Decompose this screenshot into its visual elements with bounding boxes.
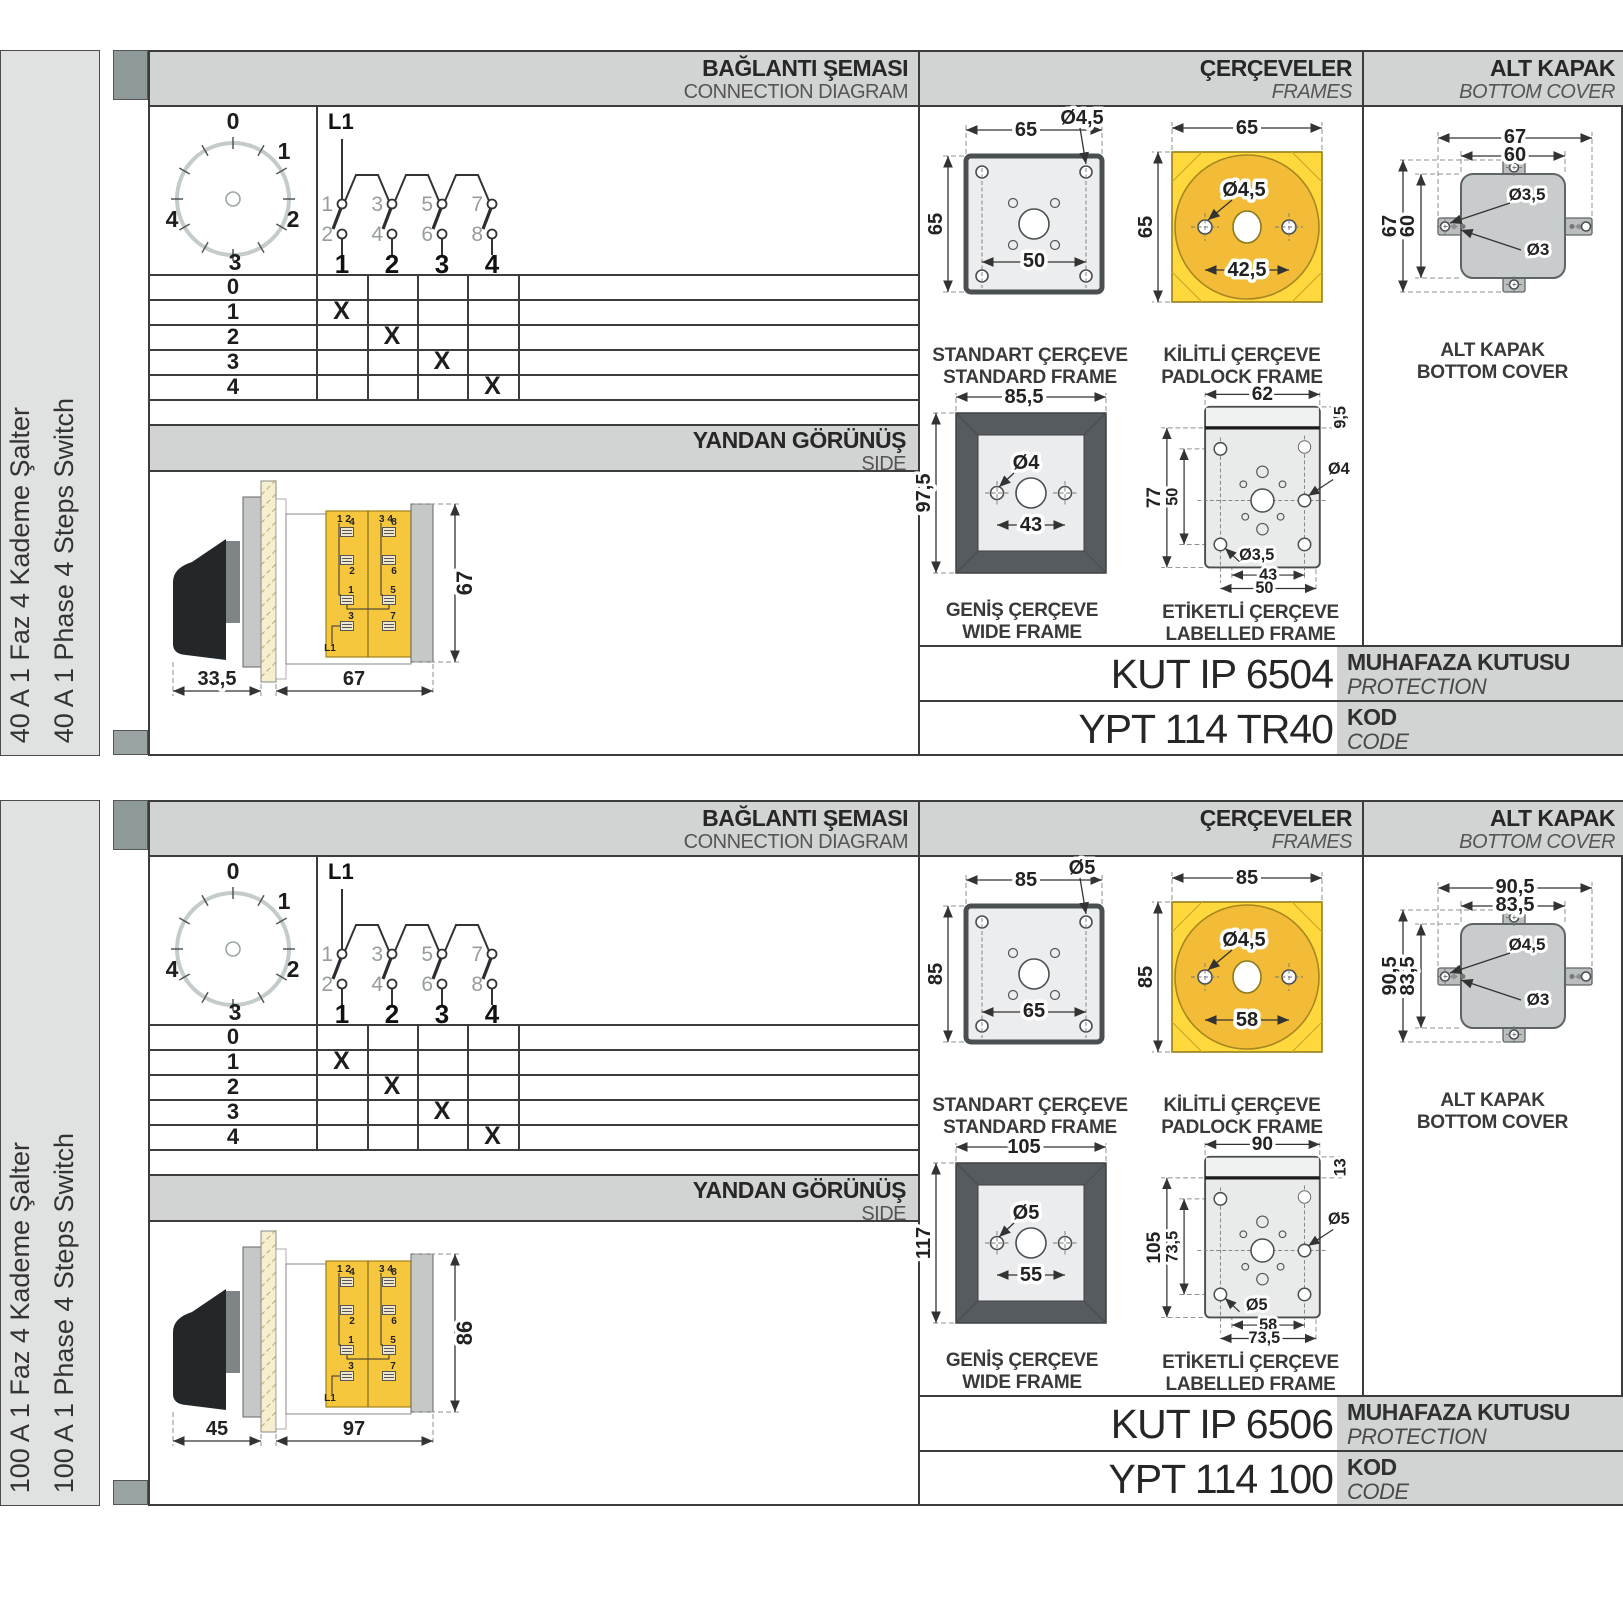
dim-height-outer: 105: [1144, 1231, 1165, 1263]
svg-text:0: 0: [227, 108, 240, 134]
svg-text:4: 4: [485, 999, 500, 1029]
header-title-tr: ÇERÇEVELER: [918, 55, 1352, 81]
svg-text:6: 6: [391, 1316, 397, 1327]
standard-frame-caption: STANDART ÇERÇEVE STANDARD FRAME: [930, 345, 1130, 389]
svg-text:6: 6: [391, 566, 397, 577]
svg-text:1: 1: [321, 943, 333, 966]
header-title-en: BOTTOM COVER: [1362, 831, 1615, 853]
end-plate: [411, 504, 433, 662]
header-title-en: FRAMES: [918, 81, 1352, 103]
svg-text:1: 1: [348, 1335, 354, 1346]
corner-tab-top: [113, 800, 148, 850]
svg-text:2: 2: [349, 1316, 355, 1327]
hole-diameter-label: Ø4,5: [1060, 107, 1103, 129]
svg-text:4: 4: [166, 956, 179, 982]
hole-diameter-bottom-left: Ø5: [1246, 1296, 1268, 1314]
switch-circuit-diagram: L1: [316, 857, 918, 1024]
svg-text:1: 1: [335, 249, 349, 279]
side-view-header: YANDAN GÖRÜNÜŞ SIDE: [150, 424, 918, 472]
rotary-dial-diagram: 0 1 2 3 4: [150, 857, 316, 1024]
dim-hole-pitch: 43: [1020, 514, 1042, 536]
switch-handle: [173, 1289, 226, 1410]
hole-diameter-a: Ø3,5: [1509, 185, 1546, 204]
svg-text:7: 7: [390, 611, 396, 622]
hole-diameter-label: Ø4: [1013, 452, 1041, 474]
dim-width: 85,5: [1005, 386, 1044, 408]
side-view-drawing: 1 23 4 48 26 15 37 L1 33,5 67 67: [158, 474, 503, 709]
svg-text:6: 6: [421, 223, 433, 246]
feed-label: L1: [328, 109, 354, 134]
svg-text:7: 7: [471, 193, 483, 216]
dim-hole-pitch: 50: [1023, 250, 1045, 272]
dim-handle-depth: 33,5: [198, 668, 237, 690]
header-connection-diagram: BAĞLANTI ŞEMASI CONNECTION DIAGRAM: [150, 802, 918, 857]
hole-diameter-right: Ø5: [1328, 1210, 1350, 1228]
bottom-cover-caption: ALT KAPAK BOTTOM COVER: [1375, 1090, 1610, 1134]
table-row-label: 1: [150, 1049, 316, 1074]
svg-text:7: 7: [471, 943, 483, 966]
bridge-links: [345, 925, 489, 951]
dim-top-strip: 9,5: [1332, 406, 1350, 429]
labelled-frame-drawing: 62 9,5 77 50 Ø4 Ø3,5 43 50: [1138, 382, 1363, 598]
hole-diameter-right: Ø4: [1328, 460, 1350, 478]
header-title-en: FRAMES: [918, 831, 1352, 853]
table-row-label: 1: [150, 299, 316, 324]
labelled-frame-caption: ETİKETLİ ÇERÇEVE LABELLED FRAME: [1138, 1352, 1363, 1396]
table-row-label: 2: [150, 324, 316, 349]
hole-diameter-label: Ø4,5: [1222, 929, 1265, 951]
header-frames: ÇERÇEVELER FRAMES: [918, 52, 1362, 107]
svg-text:5: 5: [390, 585, 396, 596]
svg-text:4: 4: [371, 973, 383, 996]
side-title-tr: YANDAN GÖRÜNÜŞ: [150, 427, 906, 453]
dim-hole-pitch: 58: [1236, 1009, 1258, 1031]
dim-width: 62: [1252, 384, 1273, 405]
bottom-cover-drawing: 67 60 67 60 Ø3,5 Ø3: [1375, 112, 1610, 337]
dim-pitch-b: 73,5: [1249, 1329, 1281, 1347]
svg-text:3: 3: [435, 249, 449, 279]
dim-height: 85: [925, 963, 947, 985]
svg-text:8: 8: [471, 223, 483, 246]
svg-text:3: 3: [229, 249, 242, 275]
hole-diameter-a: Ø4,5: [1509, 935, 1546, 954]
table-row-label: 0: [150, 274, 316, 299]
table-row-label: 0: [150, 1024, 316, 1049]
side-view-drawing: 1 23 4 48 26 15 37 L1 45 97 86: [158, 1224, 503, 1459]
svg-text:1: 1: [348, 585, 354, 596]
svg-text:2: 2: [349, 566, 355, 577]
enclosure-code: KUT IP 6506: [918, 1395, 1337, 1450]
svg-text:2: 2: [287, 206, 300, 232]
product-section-100a: 100 A 1 Faz 4 Kademe Şalter 100 A 1 Phas…: [0, 800, 1623, 1506]
front-plate: [243, 497, 261, 667]
dim-width-inner: 60: [1504, 144, 1526, 166]
header-title-en: CONNECTION DIAGRAM: [150, 81, 908, 103]
panel-hatch: [261, 1231, 276, 1432]
svg-text:1: 1: [321, 193, 333, 216]
svg-text:8: 8: [471, 973, 483, 996]
product-name-en: 100 A 1 Phase 4 Steps Switch: [49, 1133, 80, 1493]
bottom-cover-caption: ALT KAPAK BOTTOM COVER: [1375, 340, 1610, 384]
svg-text:6: 6: [421, 973, 433, 996]
product-name-tr: 100 A 1 Faz 4 Kademe Şalter: [5, 1142, 36, 1493]
dim-width: 65: [1236, 117, 1258, 139]
step-cell: X: [316, 1049, 367, 1074]
standard-frame-caption: STANDART ÇERÇEVE STANDARD FRAME: [930, 1095, 1130, 1139]
dim-pitch-b: 50: [1255, 579, 1273, 597]
dim-height-inner: 73,5: [1163, 1231, 1181, 1263]
product-label-bar: 100 A 1 Faz 4 Kademe Şalter 100 A 1 Phas…: [0, 800, 100, 1506]
header-title-en: BOTTOM COVER: [1362, 81, 1615, 103]
dim-height-outer: 77: [1144, 487, 1165, 508]
svg-text:2: 2: [385, 249, 399, 279]
svg-text:3: 3: [348, 611, 354, 622]
side-view-header: YANDAN GÖRÜNÜŞ SIDE: [150, 1174, 918, 1222]
dim-width: 105: [1007, 1136, 1040, 1158]
product-name-tr: 40 A 1 Faz 4 Kademe Şalter: [5, 407, 36, 743]
table-row-label: 4: [150, 374, 316, 399]
header-title-en: CONNECTION DIAGRAM: [150, 831, 908, 853]
handle-shaft: [226, 541, 240, 623]
svg-text:4: 4: [349, 1267, 355, 1278]
svg-text:4: 4: [166, 206, 179, 232]
dim-width: 90: [1252, 1134, 1273, 1155]
dim-height-inner: 83,5: [1397, 957, 1419, 996]
end-plate: [411, 1254, 433, 1412]
dim-width: 85: [1236, 867, 1258, 889]
svg-text:3: 3: [371, 943, 383, 966]
hole-diameter-bottom-left: Ø3,5: [1239, 546, 1274, 564]
dim-height: 65: [925, 213, 947, 235]
svg-text:L1: L1: [324, 1393, 336, 1404]
product-code: YPT 114 100: [918, 1450, 1337, 1504]
dim-hole-pitch: 55: [1020, 1264, 1042, 1286]
dim-hole-pitch: 65: [1023, 1000, 1045, 1022]
handle-shaft: [226, 1291, 240, 1373]
product-section-40a: 40 A 1 Faz 4 Kademe Şalter 40 A 1 Phase …: [0, 50, 1623, 756]
table-bottom-line: [150, 399, 918, 401]
dim-height: 85: [1135, 966, 1157, 988]
dim-top-strip: 13: [1332, 1158, 1350, 1176]
svg-text:0: 0: [227, 858, 240, 884]
step-cell: X: [367, 324, 417, 349]
code-label-cell: KOD CODE: [1337, 700, 1623, 754]
enclosure-code: KUT IP 6504: [918, 645, 1337, 700]
svg-text:5: 5: [390, 1335, 396, 1346]
section-content: BAĞLANTI ŞEMASI CONNECTION DIAGRAM ÇERÇE…: [148, 800, 1623, 1506]
svg-text:5: 5: [421, 943, 433, 966]
svg-text:5: 5: [421, 193, 433, 216]
switch-circuit-diagram: L1: [316, 107, 918, 274]
hole-diameter-b: Ø3: [1527, 990, 1550, 1009]
side-title-en: SIDE: [150, 453, 906, 475]
wide-frame-caption: GENİŞ ÇERÇEVE WIDE FRAME: [922, 1350, 1122, 1394]
header-title-tr: ALT KAPAK: [1362, 55, 1615, 81]
table-row-label: 4: [150, 1124, 316, 1149]
dim-width-inner: 83,5: [1496, 894, 1535, 916]
product-label-bar: 40 A 1 Faz 4 Kademe Şalter 40 A 1 Phase …: [0, 50, 100, 756]
dim-body-depth: 97: [343, 1418, 365, 1440]
step-cell: X: [467, 374, 518, 399]
svg-text:4: 4: [371, 223, 383, 246]
header-bottom-cover: ALT KAPAK BOTTOM COVER: [1362, 52, 1623, 107]
corner-tab-bottom: [113, 1480, 148, 1505]
corner-tab-top: [113, 50, 148, 100]
header-connection-diagram: BAĞLANTI ŞEMASI CONNECTION DIAGRAM: [150, 52, 918, 107]
feed-label: L1: [328, 859, 354, 884]
dim-height-inner: 60: [1397, 215, 1419, 237]
dim-height: 117: [913, 1227, 935, 1259]
labelled-frame-drawing: 90 13 105 73,5 Ø5 Ø5 58 73,5: [1138, 1132, 1363, 1348]
svg-text:3: 3: [435, 999, 449, 1029]
dim-height-inner: 50: [1163, 488, 1181, 506]
dim-body-height: 67: [452, 571, 477, 595]
hole-diameter-label: Ø4,5: [1222, 179, 1265, 201]
enclosure-label-cell: MUHAFAZA KUTUSU PROTECTION ENCLOSURE: [1337, 1395, 1623, 1450]
svg-text:1: 1: [278, 138, 291, 164]
dim-body-height: 86: [452, 1321, 477, 1345]
header-title-tr: BAĞLANTI ŞEMASI: [150, 805, 908, 831]
step-cell: X: [417, 1099, 467, 1124]
dim-height: 97,5: [913, 474, 935, 513]
bridge-links: [345, 175, 489, 201]
padlock-frame-drawing: 65 65 42,5 Ø4,5: [1142, 110, 1342, 345]
svg-text:L1: L1: [324, 643, 336, 654]
header-title-tr: ÇERÇEVELER: [918, 805, 1352, 831]
product-name-en: 40 A 1 Phase 4 Steps Switch: [49, 398, 80, 743]
svg-text:2: 2: [321, 973, 333, 996]
switch-handle: [173, 539, 226, 660]
svg-text:7: 7: [390, 1361, 396, 1372]
step-cell: X: [467, 1124, 518, 1149]
catalog-page: 40 A 1 Faz 4 Kademe Şalter 40 A 1 Phase …: [0, 0, 1623, 1623]
side-title-tr: YANDAN GÖRÜNÜŞ: [150, 1177, 906, 1203]
wide-frame-caption: GENİŞ ÇERÇEVE WIDE FRAME: [922, 600, 1122, 644]
side-title-en: SIDE: [150, 1203, 906, 1225]
rotary-dial-diagram: 0 1 2 3 4: [150, 107, 316, 274]
hole-diameter-label: Ø5: [1069, 857, 1096, 879]
table-row-label: 3: [150, 1099, 316, 1124]
padlock-frame-drawing: 85 85 58 Ø4,5: [1142, 860, 1342, 1095]
svg-text:2: 2: [385, 999, 399, 1029]
svg-text:2: 2: [321, 223, 333, 246]
svg-text:8: 8: [391, 517, 397, 528]
dim-height: 65: [1135, 216, 1157, 238]
svg-text:8: 8: [391, 1267, 397, 1278]
header-title-tr: BAĞLANTI ŞEMASI: [150, 55, 908, 81]
wide-frame-drawing: 85,5 97,5 43 Ø4: [922, 385, 1122, 597]
hole-diameter-b: Ø3: [1527, 240, 1550, 259]
svg-text:1: 1: [335, 999, 349, 1029]
step-cell: X: [417, 349, 467, 374]
bottom-cover-drawing: 90,5 83,5 90,5 83,5 Ø4,5 Ø3: [1375, 862, 1610, 1087]
labelled-frame-caption: ETİKETLİ ÇERÇEVE LABELLED FRAME: [1138, 602, 1363, 646]
standard-frame-drawing: 65 65 50 Ø4,5: [930, 110, 1130, 345]
code-label-cell: KOD CODE: [1337, 1450, 1623, 1504]
svg-text:4: 4: [349, 517, 355, 528]
table-row-label: 3: [150, 349, 316, 374]
section-content: BAĞLANTI ŞEMASI CONNECTION DIAGRAM ÇERÇE…: [148, 50, 1623, 756]
wide-frame-drawing: 105 117 55 Ø5: [922, 1135, 1122, 1347]
dim-body-depth: 67: [343, 668, 365, 690]
header-bottom-cover: ALT KAPAK BOTTOM COVER: [1362, 802, 1623, 857]
header-frames: ÇERÇEVELER FRAMES: [918, 802, 1362, 857]
table-row-label: 2: [150, 1074, 316, 1099]
dim-handle-depth: 45: [206, 1418, 228, 1440]
dim-width: 65: [1015, 119, 1037, 141]
corner-tab-bottom: [113, 730, 148, 755]
svg-text:2: 2: [287, 956, 300, 982]
step-cell: X: [367, 1074, 417, 1099]
svg-text:4: 4: [485, 249, 500, 279]
front-plate: [243, 1247, 261, 1417]
hole-diameter-label: Ø5: [1013, 1202, 1040, 1224]
header-title-tr: ALT KAPAK: [1362, 805, 1615, 831]
enclosure-label-cell: MUHAFAZA KUTUSU PROTECTION ENCLOSURE: [1337, 645, 1623, 700]
svg-text:3: 3: [229, 999, 242, 1025]
dim-hole-pitch: 42,5: [1228, 259, 1267, 281]
product-code: YPT 114 TR40: [918, 700, 1337, 754]
svg-text:3: 3: [371, 193, 383, 216]
panel-hatch: [261, 481, 276, 682]
svg-text:3: 3: [348, 1361, 354, 1372]
dim-width: 85: [1015, 869, 1037, 891]
standard-frame-drawing: 85 85 65 Ø5: [930, 860, 1130, 1095]
svg-text:1: 1: [278, 888, 291, 914]
step-cell: X: [316, 299, 367, 324]
